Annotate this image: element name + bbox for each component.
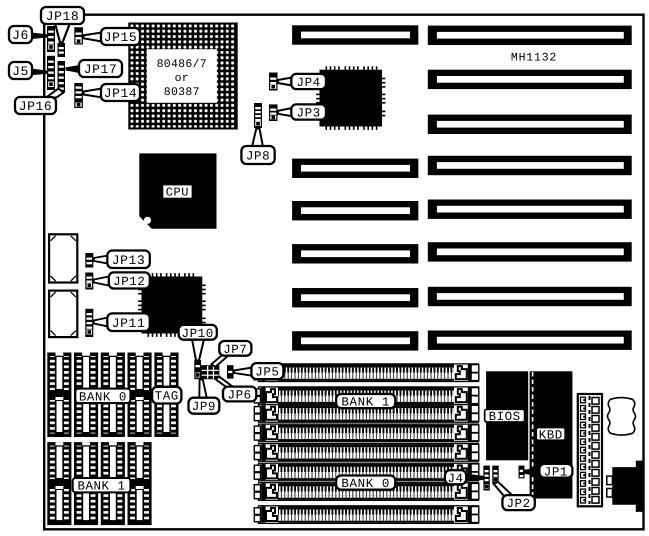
svg-text:JP14: JP14 [104, 86, 138, 101]
svg-text:JP11: JP11 [112, 316, 146, 331]
svg-text:JP4: JP4 [296, 76, 320, 90]
svg-text:JP8: JP8 [246, 150, 270, 164]
svg-text:J5: J5 [12, 64, 29, 79]
svg-text:J6: J6 [12, 28, 29, 43]
svg-text:KBD: KBD [539, 428, 563, 442]
svg-text:JP10: JP10 [181, 327, 213, 341]
svg-text:TAG: TAG [155, 390, 179, 404]
svg-text:CPU: CPU [166, 186, 189, 200]
svg-text:BIOS: BIOS [489, 410, 521, 424]
svg-text:JP16: JP16 [19, 99, 53, 114]
svg-text:JP18: JP18 [46, 9, 80, 24]
svg-text:JP7: JP7 [223, 343, 247, 357]
svg-text:JP17: JP17 [84, 62, 118, 77]
svg-text:JP13: JP13 [112, 253, 146, 268]
svg-text:80486/7: 80486/7 [157, 58, 207, 71]
svg-text:J4: J4 [447, 472, 463, 486]
svg-text:JP9: JP9 [192, 400, 216, 414]
svg-text:JP15: JP15 [104, 30, 138, 45]
svg-text:JP3: JP3 [296, 107, 320, 121]
svg-text:JP2: JP2 [506, 497, 530, 511]
svg-text:or: or [175, 72, 189, 85]
svg-text:JP12: JP12 [113, 275, 145, 289]
svg-text:80387: 80387 [164, 86, 200, 99]
svg-text:BANK 1: BANK 1 [341, 396, 390, 410]
svg-text:BANK 0: BANK 0 [79, 390, 127, 404]
svg-text:BANK 0: BANK 0 [341, 477, 390, 491]
svg-text:MH1132: MH1132 [511, 52, 557, 65]
svg-text:JP6: JP6 [227, 389, 251, 403]
svg-text:BANK 1: BANK 1 [78, 480, 126, 494]
svg-text:JP1: JP1 [544, 465, 568, 479]
svg-text:JP5: JP5 [255, 366, 279, 380]
